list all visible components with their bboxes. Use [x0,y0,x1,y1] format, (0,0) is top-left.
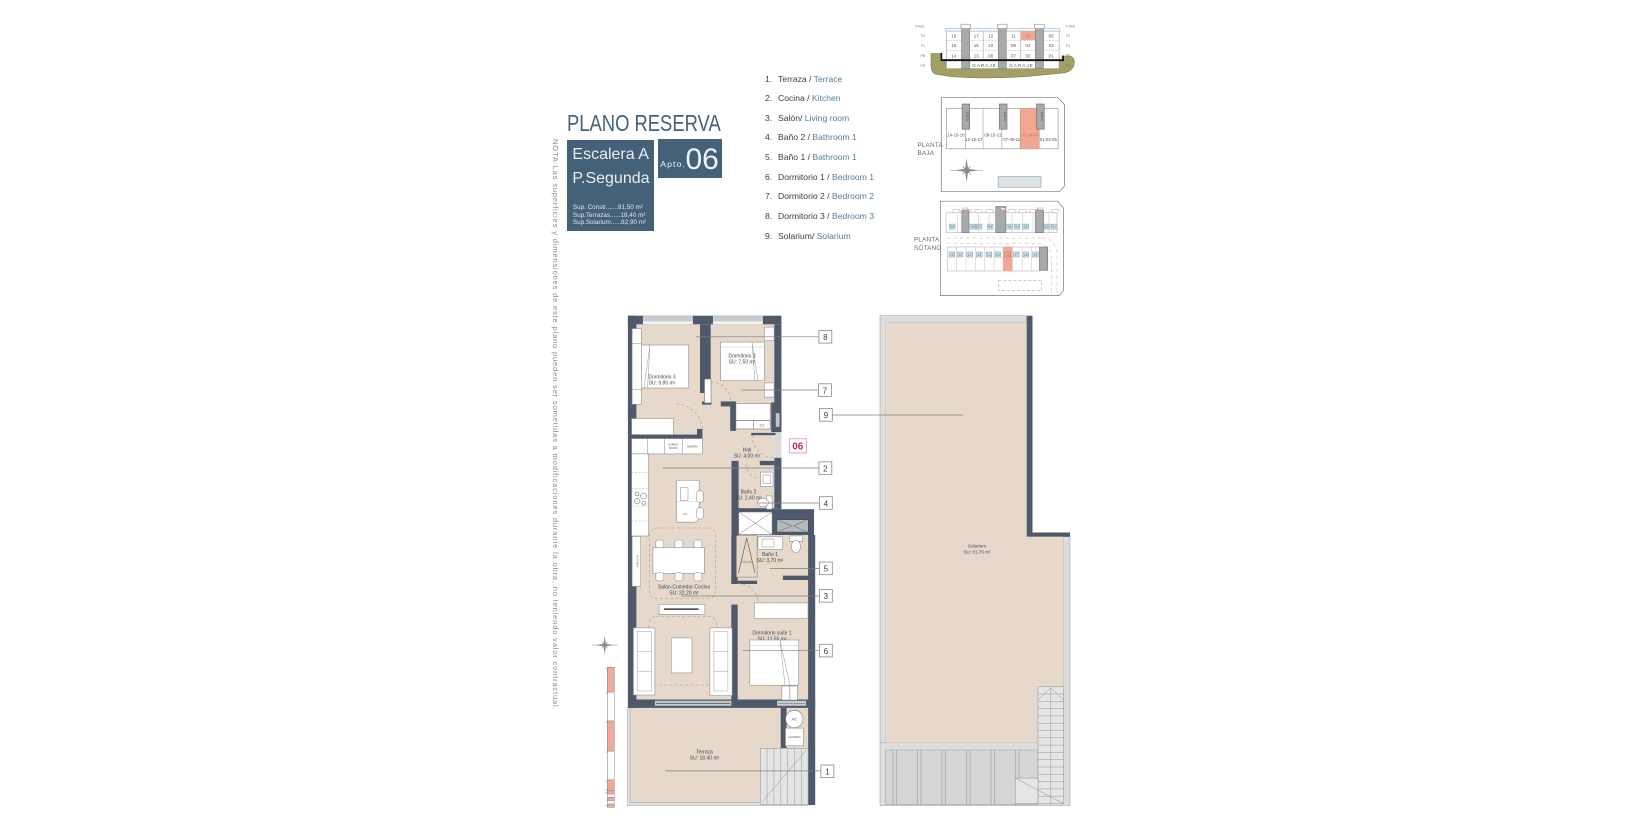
svg-text:7: 7 [823,386,828,395]
svg-text:04: 04 [1025,43,1031,48]
svg-text:SÓTANO: SÓTANO [914,245,941,252]
svg-text:ESC.B: ESC.B [966,112,970,121]
svg-text:09: 09 [950,225,954,229]
svg-text:03: 03 [1049,43,1055,48]
svg-text:SU: 81,70 m²: SU: 81,70 m² [963,550,991,555]
svg-text:ESC: ESC [1038,209,1043,211]
svg-text:11: 11 [958,253,962,257]
svg-text:LAV: LAV [683,512,688,516]
svg-text:13: 13 [974,53,980,58]
svg-text:16: 16 [1006,253,1010,257]
svg-text:C1: C1 [760,424,764,428]
svg-text:04: 04 [1015,225,1019,229]
svg-text:07-09-11: 07-09-11 [1003,137,1020,142]
svg-text:17: 17 [1014,253,1018,257]
svg-text:05: 05 [1008,225,1012,229]
svg-text:03: 03 [1024,225,1028,229]
svg-text:8: 8 [823,333,828,342]
svg-text:PS: PS [1066,64,1071,68]
svg-text:HORNO: HORNO [668,443,678,447]
svg-text:11: 11 [1011,33,1016,38]
svg-text:P1: P1 [921,44,925,48]
svg-text:P1: P1 [1066,44,1070,48]
svg-text:GARAJE: GARAJE [972,63,996,68]
svg-text:MICRO: MICRO [669,446,678,450]
svg-text:P.SOL: P.SOL [1066,25,1076,29]
svg-text:LAVADORA: LAVADORA [788,736,801,739]
svg-text:16: 16 [951,43,957,48]
svg-text:2: 2 [823,465,828,474]
svg-text:BAJA: BAJA [918,150,935,157]
svg-text:09: 09 [1011,43,1017,48]
svg-text:GARAJE: GARAJE [1009,63,1033,68]
svg-text:14: 14 [951,53,957,58]
svg-text:6: 6 [824,647,829,656]
svg-text:PB: PB [1066,54,1071,58]
svg-text:12: 12 [988,33,994,38]
svg-text:12: 12 [968,253,972,257]
svg-text:06: 06 [988,225,992,229]
svg-text:SU: 2,40 m²: SU: 2,40 m² [735,496,762,502]
svg-text:12-15-17: 12-15-17 [965,137,983,142]
svg-text:18: 18 [1024,253,1028,257]
svg-text:18: 18 [951,33,957,38]
svg-text:SU: 4,00 m²: SU: 4,00 m² [734,454,761,460]
svg-text:06: 06 [1025,33,1031,38]
svg-text:3: 3 [824,592,829,601]
svg-text:19: 19 [1034,253,1038,257]
svg-text:08: 08 [971,225,975,229]
svg-text:14: 14 [987,253,991,257]
svg-text:PLANTA: PLANTA [914,237,940,244]
svg-text:17: 17 [974,33,980,38]
svg-text:10: 10 [950,253,954,257]
svg-text:07: 07 [1011,53,1017,58]
svg-text:P.SOL: P.SOL [915,25,925,29]
svg-text:SU: 9,80 m²: SU: 9,80 m² [649,381,676,387]
svg-text:A/C: A/C [792,718,798,722]
svg-text:0.5: 0.5 [605,790,609,794]
svg-text:4: 4 [824,499,829,508]
svg-text:NEVERA: NEVERA [687,445,698,449]
svg-text:SU: 3,70 m²: SU: 3,70 m² [757,558,784,564]
svg-text:08-10-12: 08-10-12 [984,133,1002,138]
svg-text:SU: 18,40 m²: SU: 18,40 m² [690,756,720,762]
svg-text:08: 08 [988,53,994,58]
svg-text:P2: P2 [921,34,925,38]
svg-text:PS: PS [920,64,925,68]
svg-text:15: 15 [974,43,980,48]
svg-text:01: 01 [1052,225,1056,229]
svg-text:01: 01 [1049,53,1055,58]
svg-text:ESC.C: ESC.C [1003,112,1007,122]
svg-text:02-04-06: 02-04-06 [1021,133,1039,138]
svg-text:5: 5 [824,565,829,574]
svg-text:ESC: ESC [963,209,968,211]
svg-text:14-16-18: 14-16-18 [947,133,965,138]
svg-text:02: 02 [1025,53,1031,58]
svg-text:06: 06 [792,442,804,453]
svg-text:9: 9 [824,411,829,420]
svg-text:PLANTA: PLANTA [918,142,944,149]
svg-text:PB: PB [920,54,925,58]
svg-text:SU: 32,20 m²: SU: 32,20 m² [669,591,699,597]
svg-text:P2: P2 [1066,34,1070,38]
svg-text:13: 13 [977,253,981,257]
svg-text:15: 15 [996,253,1000,257]
svg-text:Solarium: Solarium [968,544,986,549]
svg-text:01-03-05: 01-03-05 [1040,137,1058,142]
svg-text:1: 1 [825,768,830,777]
svg-text:ESC.A: ESC.A [1040,112,1044,121]
svg-text:10: 10 [988,43,994,48]
svg-text:07: 07 [977,225,981,229]
svg-text:ALACENA: ALACENA [636,555,640,567]
svg-text:02: 02 [1045,225,1049,229]
svg-text:SU: 7,50 m²: SU: 7,50 m² [729,360,756,366]
svg-text:ESC: ESC [1001,209,1006,211]
svg-text:05: 05 [1049,33,1055,38]
